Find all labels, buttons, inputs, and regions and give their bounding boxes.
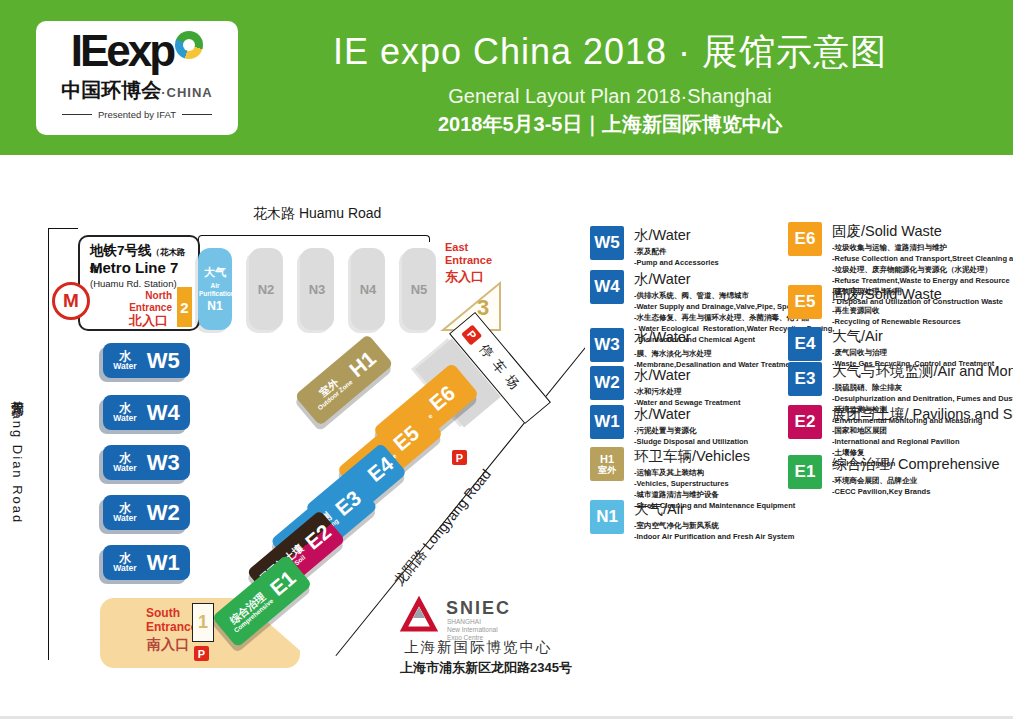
header-titles: IE expo China 2018 · 展馆示意图 General Layou… xyxy=(230,0,990,155)
north-entrance-label-en: North Entrance xyxy=(120,290,172,313)
north-entrance-label-zh: 北入口 xyxy=(129,312,168,330)
legend-title: 水/Water xyxy=(634,226,719,245)
legend-line: -国家和地区展团 xyxy=(832,426,1013,437)
sniec-logo-icon xyxy=(398,596,440,634)
south-entrance-gate-number: 1 xyxy=(192,603,214,642)
legend-line: -Refuse Collection and Transport,Street … xyxy=(832,254,1013,265)
legend-line: -环境商会展团、品牌企业 xyxy=(832,476,1000,487)
parking-icon: P xyxy=(194,646,209,661)
logo-wordmark: IEexp xyxy=(71,29,203,75)
hall-w4-id: W4 xyxy=(147,400,180,426)
legend-line: -脱硫脱硝、除尘排灰 xyxy=(832,383,1013,394)
legend-badge-w4: W4 xyxy=(590,270,624,304)
divider-line xyxy=(182,114,212,115)
logo-china-text: ·CHINA xyxy=(161,85,213,100)
shanghai-metro-icon: M xyxy=(52,282,90,320)
logo-cn-text: 中国环博会 xyxy=(61,79,161,101)
hall-n1-id: N1 xyxy=(207,299,222,313)
legend-line: -城市道路清洁与维护设备 xyxy=(634,490,795,501)
legend-title: 固废/Solid Waste xyxy=(832,222,1013,241)
legend-title: 大气/Air xyxy=(832,327,994,346)
logo-chinese: 中国环博会·CHINA xyxy=(61,77,213,104)
legend-line: -Indoor Air Purification and Fresh Air S… xyxy=(634,532,794,543)
legend-line: -Pump and Accessories xyxy=(634,258,719,269)
ie-expo-logo: IEexp 中国环博会·CHINA Presented by IFAT xyxy=(36,21,238,135)
legend-entry-e5: E5 固废/Solid Waste -再生资源回收 -Recycling of … xyxy=(788,285,961,328)
legend-line: -废气回收与治理 xyxy=(832,348,994,359)
hall-n1-zh: 大气 xyxy=(204,265,226,280)
hall-w2-id: W2 xyxy=(147,500,180,526)
legend-badge-w5: W5 xyxy=(590,226,624,260)
legend-badge-e5: E5 xyxy=(788,285,822,319)
divider-line xyxy=(62,114,92,115)
sniec-sub2: New International xyxy=(447,626,498,634)
page-title: IE expo China 2018 · 展馆示意图 xyxy=(230,28,990,77)
legend-line: -污泥处置与资源化 xyxy=(634,426,748,437)
hall-w1: 水Water W1 xyxy=(103,545,190,580)
header: IEexp 中国环博会·CHINA Presented by IFAT IE e… xyxy=(0,0,1013,155)
hall-n1-en: Air Purification xyxy=(199,282,231,298)
logo-presented-by: Presented by IFAT xyxy=(62,109,212,120)
presented-by-text: Presented by IFAT xyxy=(98,109,176,120)
legend-entry-w3: W3 水/Water -膜、海水淡化与水处理 -Membrane,Desalin… xyxy=(590,328,797,371)
hall-e6-id: E6 xyxy=(425,381,460,416)
legend-badge-e3: E3 xyxy=(788,362,822,396)
parking-icon: P xyxy=(461,324,482,345)
legend-line: -Vehicles, Superstructures xyxy=(634,479,795,490)
logo-swirl-icon xyxy=(175,31,203,59)
legend-badge-w2: W2 xyxy=(590,366,624,400)
parking-icon: P xyxy=(452,450,467,465)
legend-badge-e2: E2 xyxy=(788,405,822,439)
legend-badge-n1: N1 xyxy=(590,500,624,534)
sniec-name: SNIEC xyxy=(446,598,511,619)
hall-e4-id: E4 xyxy=(363,452,398,487)
venue-name-cn: 上海新国际博览中心 xyxy=(404,638,553,657)
legend-title: 大气/Air xyxy=(634,500,794,519)
legend-title: 水/Water xyxy=(634,328,797,347)
metro-line-zh-text: 地铁7号线 xyxy=(90,243,152,258)
legend-title: 水/Water xyxy=(634,405,748,424)
hall-w5-en: Water xyxy=(113,362,136,371)
legend-line: -International and Regional Pavilion xyxy=(832,437,1013,448)
legend-entry-w2: W2 水/Water -水和污水处理 -Water and Sewage Tre… xyxy=(590,366,740,409)
legend-entry-w5: W5 水/Water -泵及配件 -Pump and Accessories xyxy=(590,226,719,269)
page-subtitle: General Layout Plan 2018·Shanghai xyxy=(230,85,990,108)
legend-line: -室内空气净化与新风系统 xyxy=(634,521,794,532)
hall-e2-id: E2 xyxy=(301,520,336,555)
legend-badge-w3: W3 xyxy=(590,328,624,362)
hall-w4: 水Water W4 xyxy=(103,395,190,430)
hall-e1-id: E1 xyxy=(265,566,300,601)
legend-badge-w1: W1 xyxy=(590,405,624,439)
legend-title: 综合治理/ Comprehensive xyxy=(832,455,1000,474)
hall-h1-id: H1 xyxy=(345,346,381,382)
legend-badge-e4: E4 xyxy=(788,327,822,361)
layout-plan-page: IEexp 中国环博会·CHINA Presented by IFAT IE e… xyxy=(0,0,1013,719)
hall-w5-id: W5 xyxy=(147,348,180,374)
legend-badge-h1-id: H1 xyxy=(600,453,614,466)
legend-line: -膜、海水淡化与水处理 xyxy=(634,349,797,360)
legend-entry-e1: E1 综合治理/ Comprehensive -环境商会展团、品牌企业 -CEC… xyxy=(788,455,1000,498)
east-entrance-label-en: East Entrance xyxy=(445,241,507,267)
legend-entry-w1: W1 水/Water -污泥处置与资源化 -Sludge Disposal an… xyxy=(590,405,748,448)
legend-line: -CECC Pavilion,Key Brands xyxy=(832,487,1000,498)
legend-title: 环卫车辆/Vehicles xyxy=(634,447,795,466)
hall-w5: 水Water W5 xyxy=(103,343,190,378)
venue-address: 上海市浦东新区龙阳路2345号 xyxy=(400,659,572,677)
south-entrance-label-zh: 南入口 xyxy=(147,636,189,654)
hall-n3: N3 xyxy=(300,248,334,330)
hall-w1-id: W1 xyxy=(147,550,180,576)
legend-badge-h1-sub: 室外 xyxy=(598,465,616,475)
legend-title: 展团与土壤/ Pavilions and Soil xyxy=(832,405,1013,424)
hall-n2: N2 xyxy=(249,248,283,330)
hall-w4-en: Water xyxy=(113,414,136,423)
hall-n4: N4 xyxy=(351,248,385,330)
east-entrance-label-zh: 东入口 xyxy=(445,268,484,286)
hall-e5-id: E5 xyxy=(389,421,424,456)
legend-line: -泵及配件 xyxy=(634,247,719,258)
legend-entry-n1: N1 大气/Air -室内空气净化与新风系统 -Indoor Air Purif… xyxy=(590,500,794,543)
legend-title: 大气与环境监测/Air and Monitoring xyxy=(832,362,1013,381)
legend-badge-e1: E1 xyxy=(788,455,822,489)
hall-w3-id: W3 xyxy=(147,450,180,476)
legend-line: -再生资源回收 xyxy=(832,306,961,317)
legend-line: -水和污水处理 xyxy=(634,387,740,398)
hall-w3-en: Water xyxy=(113,464,136,473)
metro-info-box: 地铁7号线（花木路站） Metro Line 7 (Huamu Rd. Stat… xyxy=(78,235,200,331)
legend-badge-h1: H1 室外 xyxy=(590,447,624,481)
legend-line: -垃圾收集与运输、道路清扫与维护 xyxy=(832,243,1013,254)
venue-map: 花木路 Huamu Road 芳甸路 Fang Dian Road 龙阳路 Lo… xyxy=(0,155,585,719)
hall-w1-en: Water xyxy=(113,564,136,573)
north-entrance-gate-number: 2 xyxy=(177,287,192,327)
date-venue-line: 2018年5月3-5日｜上海新国际博览中心 xyxy=(230,111,990,138)
sniec-sub1: SHANGHAI xyxy=(447,618,498,626)
legend-title: 固废/Solid Waste xyxy=(832,285,961,304)
legend-title: 水/Water xyxy=(634,366,740,385)
legend-line: -运输车及其上装结构 xyxy=(634,468,795,479)
metro-line-en: Metro Line 7 xyxy=(90,259,178,276)
hall-w2: 水Water W2 xyxy=(103,495,190,530)
legend-line: -垃圾处理、废弃物能源化与资源化（水泥处理） xyxy=(832,265,1013,276)
hall-w3: 水Water W3 xyxy=(103,445,190,480)
hall-n5: N5 xyxy=(402,248,436,330)
logo-wordmark-text: IEexp xyxy=(71,29,173,73)
hall-w2-en: Water xyxy=(113,514,136,523)
metro-station-en: (Huamu Rd. Station) xyxy=(90,278,177,289)
hall-e3-id: E3 xyxy=(331,486,366,521)
legend-badge-e6: E6 xyxy=(788,222,822,256)
legend-line: -Desulphurization and Denitration, Fumes… xyxy=(832,394,1013,405)
hall-n1: 大气 Air Purification N1 xyxy=(198,248,232,330)
